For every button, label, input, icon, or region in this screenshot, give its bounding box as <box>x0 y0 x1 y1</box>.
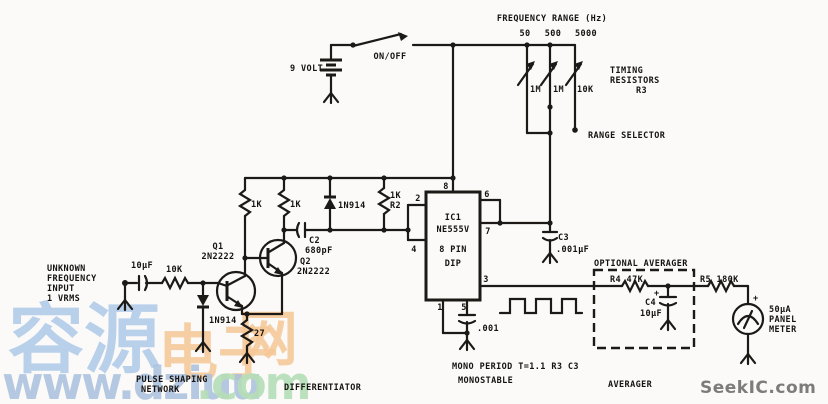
timing-label-2: RESISTORS <box>610 76 660 86</box>
ic1-ref: IC1 <box>445 213 462 223</box>
pin8-label: 8 <box>443 182 449 192</box>
clamp-diode-2 <box>324 178 336 233</box>
timing-label-1: TIMING <box>610 66 643 76</box>
c2-ref: C2 <box>309 236 320 246</box>
watermark-url-tld: .com <box>196 357 310 404</box>
optional-averager-title: OPTIONAL AVERAGER <box>594 259 688 269</box>
c4-filter-cap <box>660 286 676 330</box>
q2-part: 2N2222 <box>297 267 330 277</box>
pin3-label: 3 <box>483 275 489 285</box>
range-5000: 5000 <box>575 29 597 39</box>
frequency-meter-schematic: 容源 电子 网 www.dziuu .com SeekIC.com 9 VOLT… <box>0 0 828 404</box>
meter-plus-sign: + <box>753 294 759 304</box>
r2-pullup <box>379 178 389 233</box>
range-500: 500 <box>545 29 562 39</box>
input-res-value: 10K <box>166 265 183 275</box>
ic1-part: NE555V <box>436 225 469 235</box>
timing-resistor-pots <box>450 42 583 223</box>
meter-label-3: METER <box>769 325 797 335</box>
q1-ref: Q1 <box>212 242 223 252</box>
mono-period-label: MONO PERIOD T=1.1 R3 C3 <box>452 362 579 372</box>
r4-label: R4 47K <box>610 275 644 285</box>
switch-label: ON/OFF <box>373 52 406 62</box>
q1-transistor <box>217 272 255 310</box>
c2-coupling-cap <box>284 223 408 237</box>
emitter-res-value: 27 <box>254 329 265 339</box>
c4-ref: C4 <box>645 298 656 308</box>
pin5-cap-value: .001 <box>477 324 499 334</box>
timing-label-3: R3 <box>636 86 647 96</box>
watermark-seekic: SeekIC.com <box>700 378 816 398</box>
pot2-value: 1M <box>553 85 564 95</box>
meter-label-2: PANEL <box>769 315 797 325</box>
scanned-schematic-page: 容源 电子 网 www.dziuu .com SeekIC.com 9 VOLT… <box>0 0 828 404</box>
input-label-2: FREQUENCY <box>47 274 97 284</box>
pin4-label: 4 <box>411 245 417 255</box>
input-label-4: 1 VRMS <box>47 294 80 304</box>
c3-timing-cap <box>543 223 557 263</box>
pin2-label: 2 <box>415 194 421 204</box>
pulse-shaping-label-2: NETWORK <box>141 385 180 395</box>
ic1-pin-stubs <box>405 200 622 333</box>
c3-ref: C3 <box>558 233 569 243</box>
range-selector-label: RANGE SELECTOR <box>588 131 666 141</box>
battery-symbol <box>320 45 342 103</box>
panel-meter-symbol <box>733 304 763 364</box>
q2-collector-resistor <box>279 178 289 243</box>
q1-collector-res-value: 1K <box>251 200 263 210</box>
c3-value: .001μF <box>556 245 589 255</box>
q2-collector-res-value: 1K <box>290 200 302 210</box>
input-cap-value: 10μF <box>131 261 153 271</box>
c2-value: 680pF <box>305 246 333 256</box>
r2-value: 1K <box>390 191 402 201</box>
monostable-label: MONOSTABLE <box>458 376 513 386</box>
input-diode-value: 1N914 <box>209 316 237 326</box>
ic1-package-1: 8 PIN <box>439 245 467 255</box>
output-square-wave <box>500 299 582 313</box>
input-label-1: UNKNOWN <box>47 264 86 274</box>
range-title: FREQUENCY RANGE (Hz) <box>497 14 607 24</box>
battery-label: 9 VOLT <box>290 64 323 74</box>
pin7-label: 7 <box>485 227 491 237</box>
range-50: 50 <box>519 29 530 39</box>
pin6-label: 6 <box>484 190 490 200</box>
q2-ref: Q2 <box>300 257 311 267</box>
r5-label: R5 180K <box>700 275 739 285</box>
c4-value: 10μF <box>640 309 662 319</box>
meter-label-1: 50μA <box>769 305 791 315</box>
pin1-label: 1 <box>437 303 443 313</box>
pin5-label: 5 <box>461 303 467 313</box>
input-label-3: INPUT <box>47 284 75 294</box>
averager-label: AVERAGER <box>608 380 653 390</box>
differentiator-label: DIFFERENTIATOR <box>284 383 362 393</box>
vplus-rail <box>245 45 456 192</box>
clamp-diode-value: 1N914 <box>338 201 366 211</box>
ic1-package-2: DIP <box>445 259 462 269</box>
q1-part: 2N2222 <box>201 252 234 262</box>
pulse-shaping-label-1: PULSE SHAPING <box>136 375 208 385</box>
pot1-value: 1M <box>530 85 541 95</box>
r2-ref: R2 <box>390 201 401 211</box>
pot3-value: 10K <box>577 85 594 95</box>
